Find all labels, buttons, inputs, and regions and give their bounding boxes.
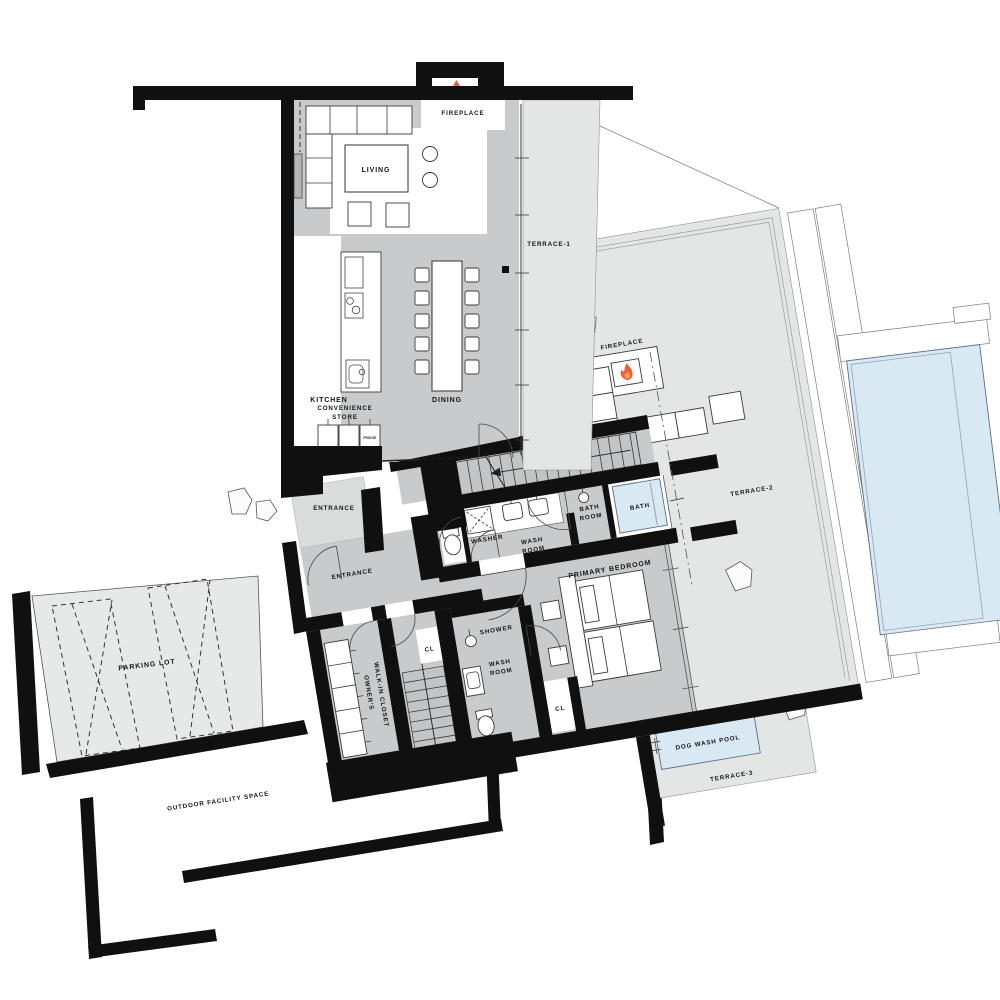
north-wall [133, 86, 633, 100]
junction-wall-2 [361, 487, 384, 553]
convenience-label-2: STORE [332, 414, 358, 421]
washing-machine [464, 506, 494, 534]
entrance-porch-label: ENTRANCE [313, 505, 355, 512]
outdoor-facility-label: OUTDOOR FACILITY SPACE [167, 790, 270, 812]
parking-lot-area: PARKING LOT [12, 576, 308, 778]
fireplace-main-label: FIREPLACE [441, 110, 484, 117]
fridge-label: FRIDGE [363, 436, 376, 440]
convenience-label-1: CONVENIENCE [317, 405, 372, 412]
coffee-table: LIVING [345, 145, 408, 192]
floor-plan-page: PARKING LOT OUTDOOR FACILITY SPACE DOG W… [0, 0, 1000, 1000]
outdoor-long-wall [182, 819, 503, 883]
north-wall-end [133, 86, 145, 110]
dining-table [432, 261, 462, 391]
living-label: LIVING [362, 167, 391, 174]
west-wall [281, 98, 294, 456]
column [502, 266, 509, 273]
outdoor-west-wall [80, 797, 102, 959]
nightstand [548, 646, 569, 667]
tv-panel [294, 154, 302, 198]
ottoman [348, 202, 371, 226]
kitchen-label: KITCHEN [310, 397, 347, 404]
nightstand [541, 600, 562, 621]
roof-edge-line [600, 126, 779, 208]
floor-plan-canvas: PARKING LOT OUTDOOR FACILITY SPACE DOG W… [0, 0, 1000, 1000]
terrace-1-floor [523, 100, 600, 470]
rock [256, 500, 277, 521]
ottoman [386, 203, 409, 227]
kitchen-island [341, 252, 381, 392]
rock [228, 488, 252, 514]
outdoor-south-wall [88, 929, 217, 958]
dining-label: DINING [432, 397, 462, 404]
terrace-1-label: TERRACE-1 [527, 241, 571, 248]
